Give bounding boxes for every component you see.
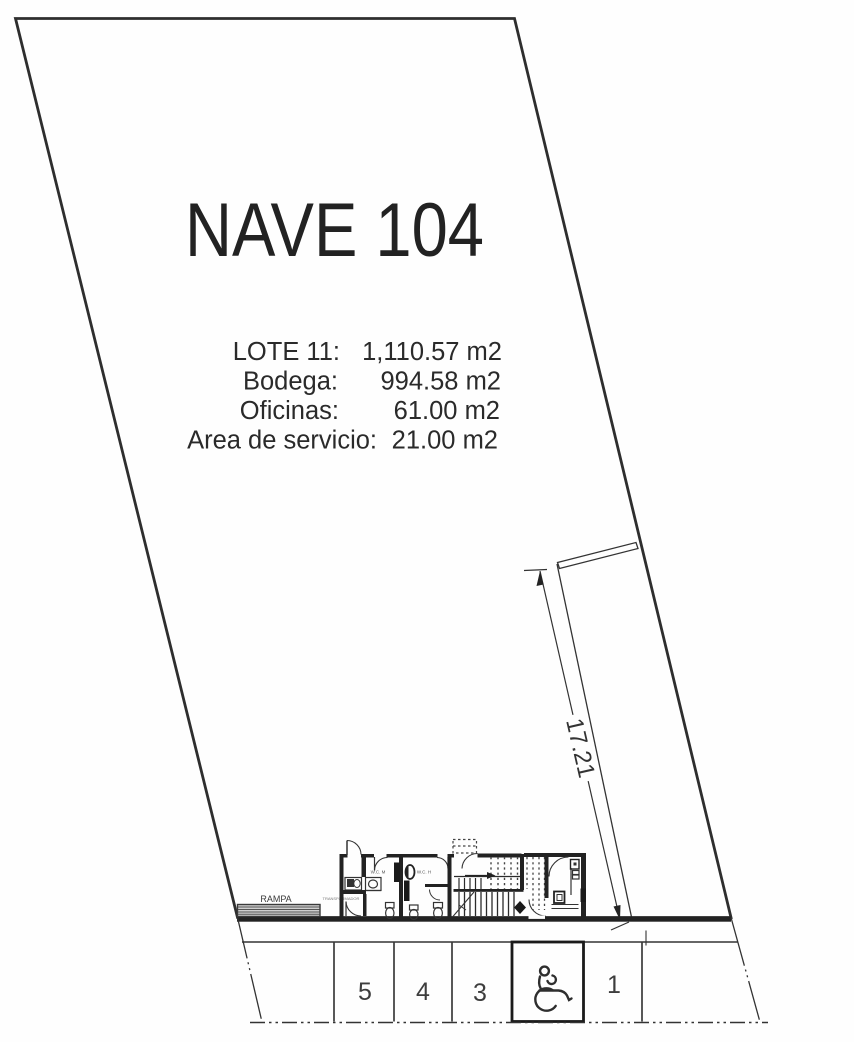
svg-text:61.00 m2: 61.00 m2 <box>394 397 500 425</box>
svg-text:1,110.57 m2: 1,110.57 m2 <box>362 338 502 366</box>
svg-text:Bodega:: Bodega: <box>243 368 338 396</box>
svg-text:4: 4 <box>416 978 430 1006</box>
svg-text:Area de servicio:: Area de servicio: <box>187 427 377 455</box>
svg-text:Oficinas:: Oficinas: <box>240 397 339 425</box>
svg-text:3: 3 <box>473 979 487 1007</box>
svg-text:1: 1 <box>607 971 621 999</box>
svg-text:W.C. M: W.C. M <box>371 870 386 875</box>
svg-text:21.00 m2: 21.00 m2 <box>392 427 498 455</box>
svg-text:LOTE 11:: LOTE 11: <box>233 338 340 366</box>
svg-text:17.21: 17.21 <box>560 716 600 781</box>
svg-text:994.58 m2: 994.58 m2 <box>380 368 501 396</box>
svg-text:RAMPA: RAMPA <box>260 894 291 904</box>
svg-text:NAVE 104: NAVE 104 <box>185 188 484 273</box>
svg-text:W.C. H: W.C. H <box>417 870 431 875</box>
svg-text:5: 5 <box>358 978 372 1006</box>
